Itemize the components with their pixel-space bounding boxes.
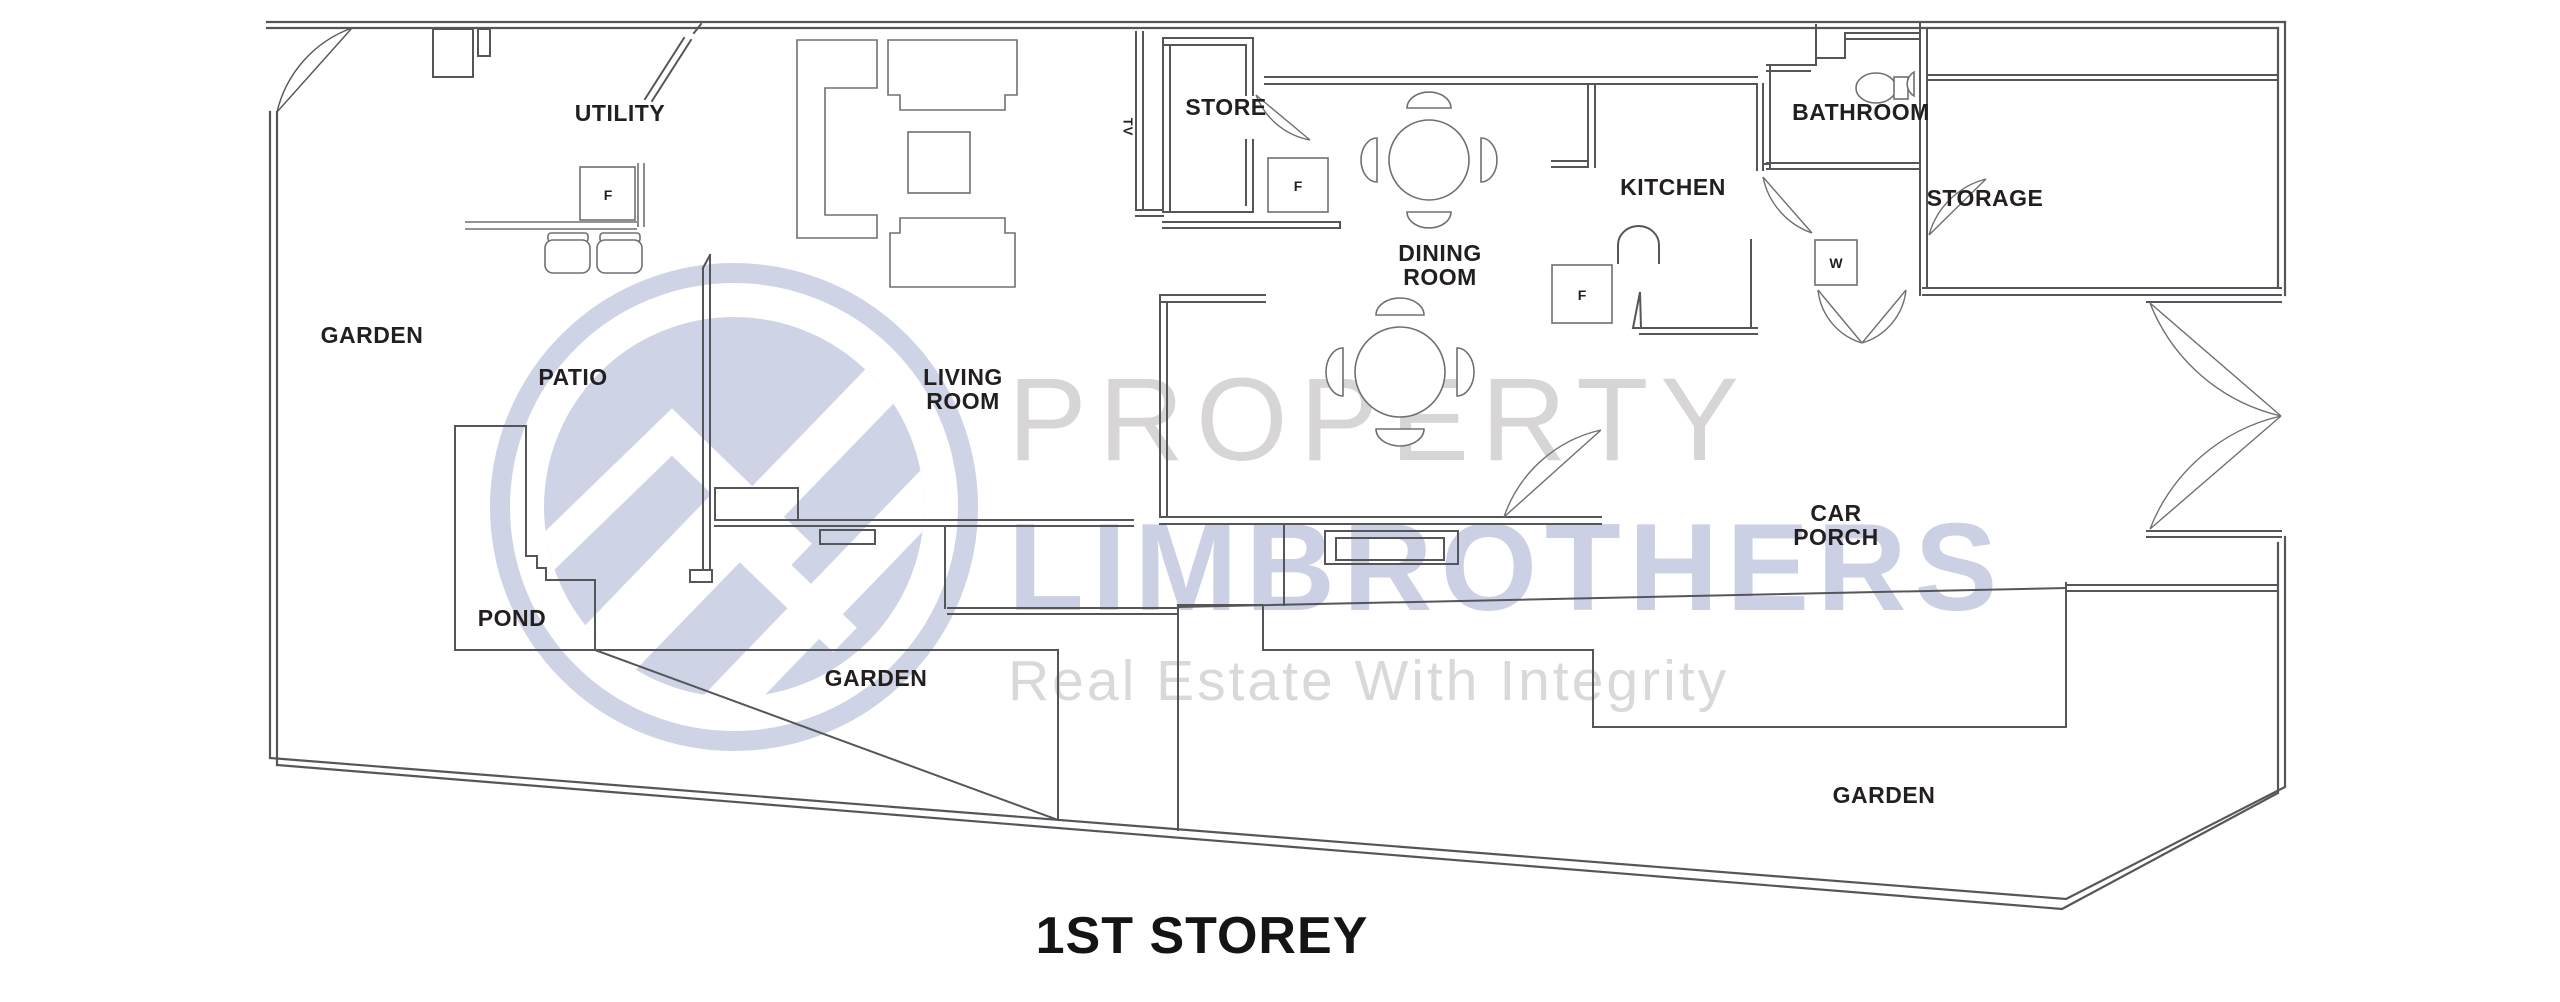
label-kitchen: KITCHEN	[1620, 174, 1726, 200]
floorplan-page: PROPERTY LIMBROTHERS Real Estate With In…	[0, 0, 2560, 1002]
label-carporch-line1: CAR	[1810, 500, 1861, 526]
label-garden-middle: GARDEN	[825, 665, 928, 691]
label-fridge-store: F	[1294, 178, 1303, 194]
limbrothers-logo-icon	[500, 273, 992, 770]
label-bathroom: BATHROOM	[1792, 99, 1930, 125]
dining-table-upper	[1361, 92, 1497, 228]
living-room-furniture	[797, 40, 1017, 287]
label-fridge-kitchen: F	[1578, 287, 1587, 303]
label-utility: UTILITY	[575, 100, 665, 126]
watermark-tagline-text: Real Estate With Integrity	[1008, 649, 1729, 713]
label-tv: TV	[1121, 118, 1136, 137]
page-title: 1ST STOREY	[1036, 907, 1369, 965]
label-storage: STORAGE	[1927, 185, 2044, 211]
label-dining-line2: ROOM	[1403, 264, 1477, 290]
label-fridge-utility: F	[604, 187, 613, 203]
label-garden-right: GARDEN	[1833, 782, 1936, 808]
label-pond: POND	[478, 605, 546, 631]
label-living-line1: LIVING	[923, 364, 1003, 390]
label-living-line2: ROOM	[926, 388, 1000, 414]
label-washer: W	[1829, 255, 1843, 271]
watermark: PROPERTY LIMBROTHERS Real Estate With In…	[500, 273, 2005, 770]
label-store: STORE	[1185, 94, 1266, 120]
label-patio: PATIO	[538, 364, 607, 390]
label-carporch-line2: PORCH	[1793, 524, 1879, 550]
label-dining-line1: DINING	[1398, 240, 1482, 266]
label-garden-left: GARDEN	[321, 322, 424, 348]
utility-furniture	[465, 163, 644, 273]
floorplan-canvas: PROPERTY LIMBROTHERS Real Estate With In…	[0, 0, 2560, 1002]
